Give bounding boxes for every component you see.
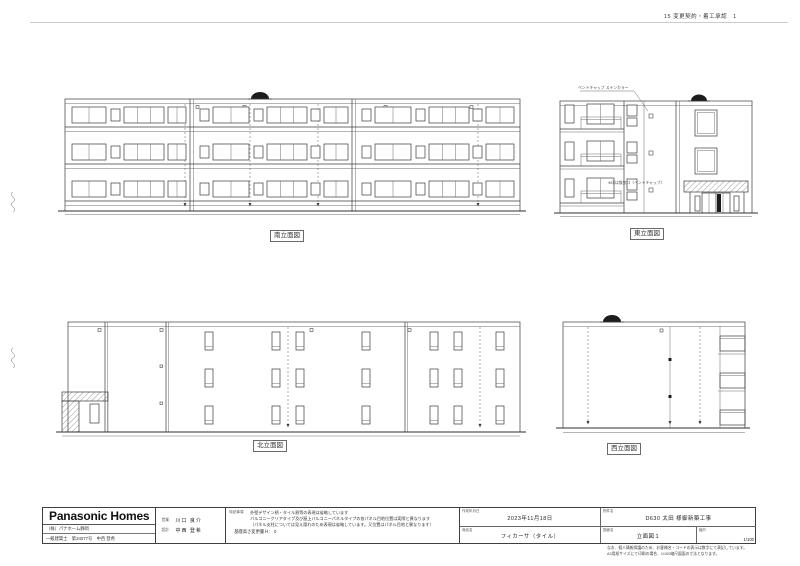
north-elevation-label: 北立面図 xyxy=(253,440,287,452)
sales-name: 川口 良介 xyxy=(175,517,201,524)
sales-staff-row: 営業 川口 良介 xyxy=(156,517,225,524)
date-label: 作成年月日 xyxy=(462,509,480,514)
elevation-linework xyxy=(0,0,800,566)
info-grid: 作成年月日 2023年11月18日 物件名 D630 太田 様御新築工事 商品名… xyxy=(459,508,755,543)
east-annotation-mid: ※印は換気口（ベントキャップ） xyxy=(608,180,664,186)
west-elevation-label: 西立面図 xyxy=(607,443,641,455)
architect-license: 一級建築士 第34077号 中西 登希 xyxy=(43,534,155,543)
project-label: 物件名 xyxy=(603,509,614,514)
product-value: フィカーサ（タイル） xyxy=(501,529,560,540)
south-elevation-drawing xyxy=(58,92,526,215)
south-elevation-label: 南立面図 xyxy=(270,230,304,242)
date-value: 2023年11月18日 xyxy=(507,511,552,522)
base-height-note: 基礎高さ変更量Ｈ： 0 xyxy=(234,529,457,535)
west-elevation-drawing xyxy=(556,315,750,433)
north-elevation-drawing xyxy=(56,322,526,436)
title-block: Panasonic Homes （株）パナホーム静岡 一級建築士 第34077号… xyxy=(42,507,756,544)
drawing-name-value: 立面図１ xyxy=(637,529,661,540)
break-mark xyxy=(11,348,14,368)
date-cell: 作成年月日 2023年11月18日 xyxy=(460,508,600,526)
product-cell: 商品名 フィカーサ（タイル） xyxy=(460,526,600,544)
product-label: 商品名 xyxy=(462,528,473,533)
drawing-name-cell: 図面名 立面図１ xyxy=(600,526,696,544)
design-staff-row: 設計 中西 登希 xyxy=(156,527,225,534)
design-label: 設計 xyxy=(161,528,175,533)
staff-cell: 営業 川口 良介 設計 中西 登希 xyxy=(155,508,225,543)
notes-label: 特記事項 xyxy=(229,510,250,516)
logo-cell: Panasonic Homes （株）パナホーム静岡 一級建築士 第34077号… xyxy=(43,508,155,543)
scale-value: 1/100 xyxy=(744,537,754,542)
drawing-sheet: 15 変更契約・着工承認 1 南立面図 東立面図 北立面図 西立面図 ベントキャ… xyxy=(0,0,800,566)
fine-print-line-2: A3用紙サイズにて印刷の場合、1/100縮尺図面の寸法となります。 xyxy=(607,552,797,558)
privacy-fine-print: なお、個人情報保護のため、お客様名・コードの表示は数字にて表記しています。 A3… xyxy=(607,546,797,557)
scale-cell: 縮尺 1/100 xyxy=(696,526,756,544)
design-name: 中西 登希 xyxy=(175,527,201,534)
east-elevation-label: 東立面図 xyxy=(630,228,664,240)
note-line-3: （パネル支柱については見え隠れのため表現は省略しています。又位置はパネル目地と異… xyxy=(250,522,457,528)
project-cell: 物件名 D630 太田 様御新築工事 xyxy=(600,508,756,526)
notes-cell: 特記事項 外壁デザイン柄・タイル割等の表現は省略しています バルコニークリアタイ… xyxy=(225,508,459,543)
scale-label: 縮尺 xyxy=(699,528,706,533)
panasonic-homes-logo: Panasonic Homes xyxy=(43,508,155,525)
drawing-name-label: 図面名 xyxy=(603,528,614,533)
break-mark xyxy=(11,192,14,212)
sales-label: 営業 xyxy=(161,518,175,523)
east-elevation-drawing xyxy=(554,91,758,217)
project-value: D630 太田 様御新築工事 xyxy=(646,511,712,522)
company-name: （株）パナホーム静岡 xyxy=(43,525,155,534)
east-annotation-top: ベントキャップ ステンカラー xyxy=(578,85,628,91)
approval-stamp-text: 15 変更契約・着工承認 1 xyxy=(664,12,784,20)
note-line-2: バルコニークリアタイプ及び屋上バルコニーパネルタイプの各パネル目地位置は実際と異… xyxy=(250,516,457,522)
